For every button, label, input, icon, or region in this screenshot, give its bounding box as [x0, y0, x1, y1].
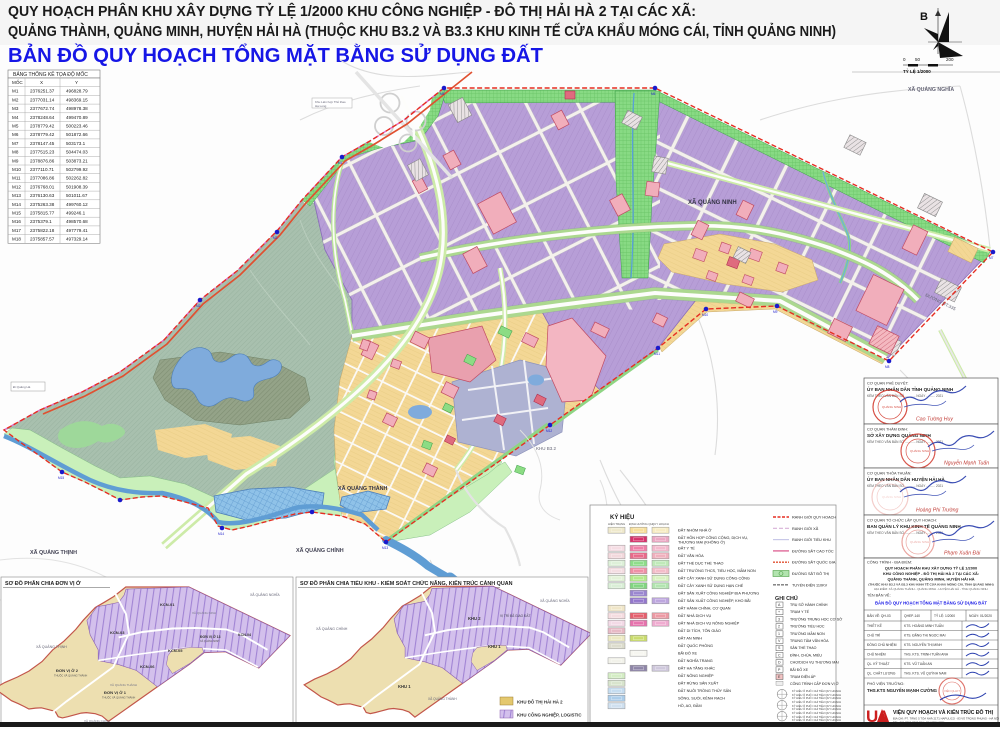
svg-text:ĐƠN VỊ Ở 13: ĐƠN VỊ Ở 13 [200, 634, 221, 639]
svg-text:200: 200 [946, 57, 954, 62]
svg-text:ĐẤT THỂ DỤC THỂ THAO: ĐẤT THỂ DỤC THỂ THAO [678, 561, 724, 566]
svg-text:TRƯỜNG TIỂU HỌC: TRƯỜNG TIỂU HỌC [790, 624, 825, 629]
svg-text:SÔNG, SUỐI, KÊNH RẠCH: SÔNG, SUỐI, KÊNH RẠCH [678, 696, 725, 701]
svg-text:498570.68: 498570.68 [66, 219, 88, 224]
svg-text:BẢN ĐỒ QUY HOẠCH TỔNG MẶT BẰNG: BẢN ĐỒ QUY HOẠCH TỔNG MẶT BẰNG SỬ DỤNG Đ… [875, 599, 987, 606]
svg-text:CHỦ NHIỆM: CHỦ NHIỆM [867, 652, 886, 657]
svg-text:ĐẤT SẢN XUẤT CÔNG NGHIỆP ĐỊA P: ĐẤT SẢN XUẤT CÔNG NGHIỆP ĐỊA PHƯƠNG [678, 591, 759, 596]
svg-text:GHI CHÚ: GHI CHÚ [775, 595, 798, 602]
svg-text:XÃ QUẢNG NGHĨA: XÃ QUẢNG NGHĨA [908, 86, 954, 93]
svg-text:KCN-05: KCN-05 [168, 648, 183, 653]
svg-text:498978.38: 498978.38 [66, 106, 88, 111]
svg-text:M9: M9 [12, 158, 19, 163]
svg-text:TÊN BẢN VẼ:: TÊN BẢN VẼ: [867, 593, 891, 598]
svg-text:M6: M6 [12, 132, 19, 137]
svg-text:KTS. ĐẶNG THỊ NGỌC MAI: KTS. ĐẶNG THỊ NGỌC MAI [904, 634, 946, 638]
svg-text:ĐÌNH, CHÙA, MIẾU: ĐÌNH, CHÙA, MIẾU [790, 652, 822, 657]
svg-text:ĐƯỜNG SẮT CAO TỐC: ĐƯỜNG SẮT CAO TỐC [792, 548, 834, 553]
svg-text:KHU ĐÔ THỊ HẢI HÀ 2: KHU ĐÔ THỊ HẢI HÀ 2 [517, 700, 563, 705]
svg-text:M4: M4 [338, 161, 343, 165]
svg-text:2377031.14: 2377031.14 [30, 97, 55, 102]
svg-text:M11: M11 [654, 352, 660, 356]
svg-text:QL. CHẤT LƯỢNG: QL. CHẤT LƯỢNG [867, 672, 896, 676]
svg-text:KCN-03: KCN-03 [110, 630, 125, 635]
svg-text:M11: M11 [12, 176, 21, 181]
svg-text:M6: M6 [651, 92, 656, 96]
svg-text:TRƯỜNG MẦM NON: TRƯỜNG MẦM NON [790, 631, 825, 636]
svg-text:M2: M2 [12, 97, 19, 102]
svg-text:501011.67: 501011.67 [66, 193, 88, 198]
svg-text:VIỆN QH-KT: VIỆN QH-KT [944, 688, 960, 693]
svg-text:Y: Y [75, 80, 78, 85]
svg-text:M7: M7 [989, 256, 994, 260]
svg-text:2375263.38: 2375263.38 [30, 202, 55, 207]
svg-text:KHU CÔNG NGHIỆP - ĐÔ THỊ HẢI H: KHU CÔNG NGHIỆP - ĐÔ THỊ HẢI HÀ 2 TẠI CÁ… [883, 571, 979, 576]
svg-text:M7: M7 [12, 141, 19, 146]
svg-text:CÔNG TRÌNH - ĐỊA ĐIỂM:: CÔNG TRÌNH - ĐỊA ĐIỂM: [867, 560, 912, 565]
svg-text:BÃI ĐỖ XE: BÃI ĐỖ XE [678, 651, 697, 656]
svg-text:QHEP-140: QHEP-140 [904, 614, 920, 618]
svg-text:NGÀY: 01/2020: NGÀY: 01/2020 [969, 614, 992, 618]
svg-text:PHÓ VIỆN TRƯỞNG:: PHÓ VIỆN TRƯỞNG: [867, 681, 904, 686]
svg-text:M3: M3 [273, 236, 278, 240]
svg-text:QUẢNG NINH: QUẢNG NINH [910, 539, 929, 544]
svg-text:QUẢNG NINH: QUẢNG NINH [910, 448, 929, 453]
svg-text:XÃ QUẢNG THỊNH: XÃ QUẢNG THỊNH [30, 549, 77, 556]
svg-text:ĐẤT NUÔI TRỒNG THỦY SẢN: ĐẤT NUÔI TRỒNG THỦY SẢN [678, 688, 731, 693]
svg-text:M18: M18 [12, 237, 21, 242]
svg-text:QUẢNG THÀNH, QUẢNG MINH, HUYỆN: QUẢNG THÀNH, QUẢNG MINH, HUYỆN HẢI HÀ (T… [8, 22, 836, 40]
svg-text:MỐC: MỐC [12, 79, 23, 85]
svg-text:3: 3 [778, 617, 780, 621]
svg-text:501908.39: 501908.39 [66, 184, 88, 189]
svg-text:M9: M9 [773, 310, 778, 314]
svg-text:ĐẤT NHÀ DỊCH VỤ NÔNG NGHIỆP: ĐẤT NHÀ DỊCH VỤ NÔNG NGHIỆP [678, 621, 740, 626]
svg-text:TRẠM ĐIỆN ÁP: TRẠM ĐIỆN ÁP [790, 674, 816, 679]
svg-text:KCN-04: KCN-04 [238, 633, 251, 637]
svg-text:KHU 2: KHU 2 [468, 616, 481, 621]
svg-text:ĐẤT TRƯỜNG THCS, TIỂU HỌC, MẦM: ĐẤT TRƯỜNG THCS, TIỂU HỌC, MẦM NON [678, 568, 756, 573]
svg-text:TUYẾN ĐIỆN 110KV: TUYẾN ĐIỆN 110KV [792, 582, 828, 587]
svg-text:RANH GIỚI QUY HOẠCH: RANH GIỚI QUY HOẠCH [792, 515, 836, 520]
svg-text:THS.KTS NGUYỄN MẠNH CƯỜNG: THS.KTS NGUYỄN MẠNH CƯỜNG [867, 688, 938, 693]
svg-text:SƠ ĐỒ PHÂN CHIA ĐƠN VỊ Ở: SƠ ĐỒ PHÂN CHIA ĐƠN VỊ Ở [5, 580, 81, 587]
svg-text:2377672.74: 2377672.74 [30, 106, 55, 111]
svg-text:ĐẤT HẠ TẦNG KHÁC: ĐẤT HẠ TẦNG KHÁC [678, 667, 715, 671]
svg-text:THS. KTS. TRỊNH TUẤN ANH: THS. KTS. TRỊNH TUẤN ANH [904, 653, 949, 657]
svg-text:TRUNG TÂM VĂN HÓA: TRUNG TÂM VĂN HÓA [790, 638, 829, 643]
svg-text:Đi Quảng Hà: Đi Quảng Hà [13, 385, 31, 389]
svg-text:XÃ QUẢNG NINH: XÃ QUẢNG NINH [688, 199, 737, 206]
svg-text:KCN-01: KCN-01 [160, 602, 175, 607]
svg-text:M12: M12 [546, 429, 552, 433]
svg-text:499246.1: 499246.1 [66, 211, 86, 216]
svg-text:X: X [40, 80, 43, 85]
svg-text:CƠ QUAN THẨM ĐỊNH:: CƠ QUAN THẨM ĐỊNH: [867, 427, 908, 432]
svg-text:XÃ QUẢNG THÀNH: XÃ QUẢNG THÀNH [428, 696, 457, 701]
svg-text:ĐẤT NHÀ DỊCH VỤ: ĐẤT NHÀ DỊCH VỤ [678, 614, 712, 618]
svg-text:ĐẤT DI TÍCH, TÔN GIÁO: ĐẤT DI TÍCH, TÔN GIÁO [678, 628, 721, 633]
svg-text:BẢNG THỐNG KÊ TỌA ĐỘ MỐC: BẢNG THỐNG KÊ TỌA ĐỘ MỐC [13, 70, 88, 78]
svg-text:ỦY BAN NHÂN DÂN HUYỆN HẢI HÀ: ỦY BAN NHÂN DÂN HUYỆN HẢI HÀ [867, 475, 945, 482]
svg-text:M2: M2 [196, 304, 201, 308]
svg-text:2376768.01: 2376768.01 [30, 184, 55, 189]
svg-text:TRẠM Y TẾ: TRẠM Y TẾ [790, 609, 810, 614]
svg-text:ĐƠN VỊ Ở 1: ĐƠN VỊ Ở 1 [104, 690, 127, 695]
svg-text:M13: M13 [12, 193, 21, 198]
svg-text:M4: M4 [12, 115, 19, 120]
svg-text:XÃ QUẢNG MINH: XÃ QUẢNG MINH [200, 640, 220, 643]
svg-text:QUY HOẠCH: QUY HOẠCH [652, 522, 669, 526]
svg-text:CÔNG TRÌNH CẤP ĐƠN VỊ Ở: CÔNG TRÌNH CẤP ĐƠN VỊ Ở [790, 681, 839, 686]
svg-text:2377515.23: 2377515.23 [30, 150, 55, 155]
svg-text:KHU 1: KHU 1 [488, 644, 501, 649]
svg-text:BÃI ĐỖ XE: BÃI ĐỖ XE [790, 667, 809, 672]
svg-text:CHỢ/DỊCH VỤ THƯƠNG MẠI: CHỢ/DỊCH VỤ THƯƠNG MẠI [790, 661, 839, 665]
svg-text:XÃ QUẢNG THÀNH: XÃ QUẢNG THÀNH [110, 682, 137, 687]
svg-text:2378779.42: 2378779.42 [30, 124, 55, 129]
svg-text:504474.03: 504474.03 [66, 150, 88, 155]
svg-text:Nguyễn Mạnh Tuấn: Nguyễn Mạnh Tuấn [944, 460, 989, 467]
svg-text:ĐỊA ĐIỂM: XÃ QUẢNG THÀNH - QUẢ: ĐỊA ĐIỂM: XÃ QUẢNG THÀNH - QUẢNG MINH - … [874, 586, 987, 591]
svg-text:ĐẤT RỪNG SẢN XUẤT: ĐẤT RỪNG SẢN XUẤT [678, 681, 719, 686]
svg-text:THIẾT KẾ: THIẾT KẾ [867, 623, 883, 628]
svg-text:Cao Tường Huy: Cao Tường Huy [916, 417, 953, 423]
svg-text:ĐỒNG CHỦ NHIỆM: ĐỒNG CHỦ NHIỆM [867, 642, 897, 647]
svg-text:ĐẤT CÂY XANH SỬ DỤNG CÔNG CỘNG: ĐẤT CÂY XANH SỬ DỤNG CÔNG CỘNG [678, 576, 750, 581]
svg-text:2377086.86: 2377086.86 [30, 176, 55, 181]
svg-text:M10: M10 [12, 167, 21, 172]
svg-text:QUY HOẠCH PHÂN KHU XÂY DỰNG TỶ: QUY HOẠCH PHÂN KHU XÂY DỰNG TỶ LỆ 1/2000 [885, 566, 977, 571]
svg-text:498369.15: 498369.15 [66, 97, 88, 102]
svg-text:M14: M14 [12, 202, 21, 207]
svg-text:M14: M14 [218, 532, 224, 536]
svg-text:HỒ, AO, ĐẦM: HỒ, AO, ĐẦM [678, 703, 702, 708]
svg-text:QUẢNG THÀNH, QUẢNG MINH, HUYỆN: QUẢNG THÀNH, QUẢNG MINH, HUYỆN HẢI HÀ [887, 576, 974, 581]
svg-text:499760.12: 499760.12 [66, 202, 88, 207]
svg-text:XÃ QUẢNG NGHĨA: XÃ QUẢNG NGHĨA [540, 598, 570, 603]
svg-text:THƯƠNG MẠI (KHÔNG Ở): THƯƠNG MẠI (KHÔNG Ở) [678, 539, 726, 544]
svg-text:ĐƠN VỊ Ở 2: ĐƠN VỊ Ở 2 [56, 668, 79, 673]
svg-text:M15: M15 [58, 476, 64, 480]
svg-text:KÝ HIỆU: KÝ HIỆU [610, 513, 634, 521]
svg-text:M8: M8 [885, 365, 890, 369]
svg-text:501872.66: 501872.66 [66, 132, 88, 137]
svg-text:2378876.86: 2378876.86 [30, 158, 55, 163]
svg-text:2375379.1: 2375379.1 [30, 219, 52, 224]
svg-text:1: 1 [778, 632, 780, 636]
svg-text:VIỆN QUY HOẠCH VÀ KIẾN TRÚC ĐÔ: VIỆN QUY HOẠCH VÀ KIẾN TRÚC ĐÔ THỊ [893, 708, 993, 716]
svg-text:M15: M15 [12, 211, 21, 216]
svg-text:2378779.42: 2378779.42 [30, 132, 55, 137]
svg-text:ĐẤT NÔNG NGHIỆP: ĐẤT NÔNG NGHIỆP [678, 673, 714, 678]
svg-text:CƠ QUAN THỎA THUẬN:: CƠ QUAN THỎA THUẬN: [867, 471, 911, 476]
svg-text:500223.46: 500223.46 [66, 124, 88, 129]
svg-text:ĐẤT HÀNH CHÍNH, CƠ QUAN: ĐẤT HÀNH CHÍNH, CƠ QUAN [678, 607, 731, 611]
svg-text:Hạ Long: Hạ Long [315, 104, 327, 108]
svg-text:2375815.77: 2375815.77 [30, 211, 55, 216]
svg-text:KHU 1: KHU 1 [398, 684, 411, 689]
svg-text:M10: M10 [702, 313, 708, 317]
svg-text:KTS. NGUYỄN THỊ MINH: KTS. NGUYỄN THỊ MINH [904, 642, 942, 647]
svg-text:2376130.63: 2376130.63 [30, 193, 55, 198]
svg-text:ĐẤT SẢN XUẤT CÔNG NGHIỆP, KHO: ĐẤT SẢN XUẤT CÔNG NGHIỆP, KHO BÃI [678, 598, 751, 603]
svg-text:KCN-06: KCN-06 [140, 664, 155, 669]
svg-text:+: + [778, 610, 780, 614]
svg-text:M16: M16 [12, 219, 21, 224]
svg-text:HIỆN TRẠNG: HIỆN TRẠNG [608, 521, 625, 526]
svg-text:QUY HOẠCH PHÂN KHU XÂY DỰNG TỶ: QUY HOẠCH PHÂN KHU XÂY DỰNG TỶ LỆ 1/2000… [8, 2, 696, 20]
svg-text:XÃ QUẢNG NINH: XÃ QUẢNG NINH [192, 610, 216, 615]
svg-text:M5: M5 [440, 92, 445, 96]
svg-text:QUẢNG NINH: QUẢNG NINH [882, 404, 901, 409]
svg-text:CƠ QUAN TỔ CHỨC LẬP QUY HOẠCH:: CƠ QUAN TỔ CHỨC LẬP QUY HOẠCH: [867, 518, 937, 523]
svg-text:2377110.71: 2377110.71 [30, 167, 54, 172]
svg-text:TỶ LỆ 1/2000: TỶ LỆ 1/2000 [903, 67, 931, 74]
svg-text:ĐẤT CÂY XANH SỬ DỤNG HẠN CHẾ: ĐẤT CÂY XANH SỬ DỤNG HẠN CHẾ [678, 583, 744, 588]
svg-text:ĐẤT NGHĨA TRANG: ĐẤT NGHĨA TRANG [678, 658, 713, 663]
svg-text:C: C [778, 653, 781, 657]
svg-text:Phạm Xuân Đài: Phạm Xuân Đài [944, 551, 981, 557]
svg-text:KHU CÔNG NGHIỆP, LOGISTIC: KHU CÔNG NGHIỆP, LOGISTIC [517, 713, 582, 718]
svg-text:RANH GIỚI TIỂU KHU: RANH GIỚI TIỂU KHU [792, 537, 831, 542]
svg-text:B: B [920, 11, 928, 23]
svg-text:2375822.18: 2375822.18 [30, 228, 55, 233]
svg-text:XÃ QUẢNG THÀNH: XÃ QUẢNG THÀNH [338, 485, 388, 492]
svg-text:502262.82: 502262.82 [66, 176, 88, 181]
svg-text:2376251.37: 2376251.37 [30, 89, 55, 94]
svg-text:RANH GIỚI XÃ: RANH GIỚI XÃ [792, 526, 819, 531]
svg-text:ĐƯỜNG SẮT ĐÔ THỊ: ĐƯỜNG SẮT ĐÔ THỊ [792, 571, 829, 576]
svg-text:D: D [778, 661, 781, 665]
svg-text:M12: M12 [12, 184, 21, 189]
svg-text:50: 50 [915, 57, 921, 62]
svg-text:KTS. HOÀNG MINH TUẤN: KTS. HOÀNG MINH TUẤN [904, 624, 944, 628]
svg-text:ĐẤT NHÓM NHÀ Ở: ĐẤT NHÓM NHÀ Ở [678, 528, 712, 533]
svg-text:XÃ QUẢNG CHÍNH: XÃ QUẢNG CHÍNH [296, 546, 344, 554]
svg-text:QL. KỸ THUẬT: QL. KỸ THUẬT [867, 661, 889, 666]
svg-text:KTS. VŨ TUẤN AN: KTS. VŨ TUẤN AN [904, 661, 933, 666]
svg-text:CƠ QUAN PHÊ DUYỆT:: CƠ QUAN PHÊ DUYỆT: [867, 381, 908, 386]
svg-text:M17: M17 [12, 228, 21, 233]
svg-text:2378248.64: 2378248.64 [30, 115, 55, 120]
svg-text:497329.14: 497329.14 [66, 237, 88, 242]
svg-text:ĐẤT AN NINH: ĐẤT AN NINH [678, 637, 702, 641]
svg-text:XÃ QUẢNG CHÍNH: XÃ QUẢNG CHÍNH [316, 626, 348, 631]
svg-text:M5: M5 [12, 124, 19, 129]
svg-text:QUẢNG NINH: QUẢNG NINH [882, 494, 901, 499]
svg-text:SÂN THỂ THAO: SÂN THỂ THAO [790, 645, 817, 650]
svg-text:503173.1: 503173.1 [66, 141, 86, 146]
svg-text:503873.21: 503873.21 [66, 158, 88, 163]
svg-text:M1: M1 [12, 89, 19, 94]
svg-text:KHU B3.2: KHU B3.2 [536, 446, 557, 451]
svg-text:CHỦ TRÌ: CHỦ TRÌ [867, 633, 880, 638]
svg-text:497779.41: 497779.41 [66, 228, 88, 233]
svg-text:THS. KTS. VŨ QUỲNH NAM: THS. KTS. VŨ QUỲNH NAM [904, 671, 947, 676]
svg-text:ĐẤT VĂN HÓA: ĐẤT VĂN HÓA [678, 553, 704, 558]
svg-text:M13: M13 [382, 546, 388, 550]
svg-text:BẢN VẼ: QH-03: BẢN VẼ: QH-03 [867, 613, 891, 618]
svg-text:2: 2 [778, 625, 780, 629]
svg-text:BẢN ĐỒ QUY HOẠCH TỔNG MẶT BẰNG: BẢN ĐỒ QUY HOẠCH TỔNG MẶT BẰNG SỬ DỤNG Đ… [8, 43, 543, 67]
svg-text:XÃ QUẢNG NGHĨA: XÃ QUẢNG NGHĨA [250, 592, 280, 597]
svg-text:Hoàng Phi Trường: Hoàng Phi Trường [916, 508, 958, 514]
svg-text:ĐẤT QUỐC PHÒNG: ĐẤT QUỐC PHÒNG [678, 643, 713, 648]
svg-text:2375857.57: 2375857.57 [30, 237, 55, 242]
svg-text:499470.89: 499470.89 [66, 115, 88, 120]
svg-text:ĐẤT Y TẾ: ĐẤT Y TẾ [678, 546, 695, 551]
svg-text:VỊ TRÍ ĐÃ GIAO ĐẤT: VỊ TRÍ ĐÃ GIAO ĐẤT [500, 613, 530, 618]
svg-text:2378147.45: 2378147.45 [30, 141, 55, 146]
svg-text:ĐẤT HỖN HỢP CÔNG CỘNG, DỊCH VỤ: ĐẤT HỖN HỢP CÔNG CỘNG, DỊCH VỤ, [678, 535, 748, 540]
svg-text:ĐƯỜNG SẮT QUỐC GIA: ĐƯỜNG SẮT QUỐC GIA [792, 560, 836, 565]
svg-text:502799.92: 502799.92 [66, 167, 88, 172]
svg-text:XÃ QUẢNG THỊNH: XÃ QUẢNG THỊNH [36, 644, 67, 649]
svg-text:ĐỊNH HƯỚNG QH: ĐỊNH HƯỚNG QH [629, 521, 653, 526]
svg-text:TRƯỜNG TRUNG HỌC CƠ SỞ: TRƯỜNG TRUNG HỌC CƠ SỞ [790, 616, 842, 621]
svg-text:M3: M3 [12, 106, 19, 111]
svg-text:M8: M8 [12, 150, 19, 155]
svg-text:496828.79: 496828.79 [66, 89, 88, 94]
svg-text:TỶ LỆ: 1/2000: TỶ LỆ: 1/2000 [934, 613, 955, 618]
svg-text:TRỤ SỞ HÀNH CHÍNH: TRỤ SỞ HÀNH CHÍNH [790, 602, 828, 607]
